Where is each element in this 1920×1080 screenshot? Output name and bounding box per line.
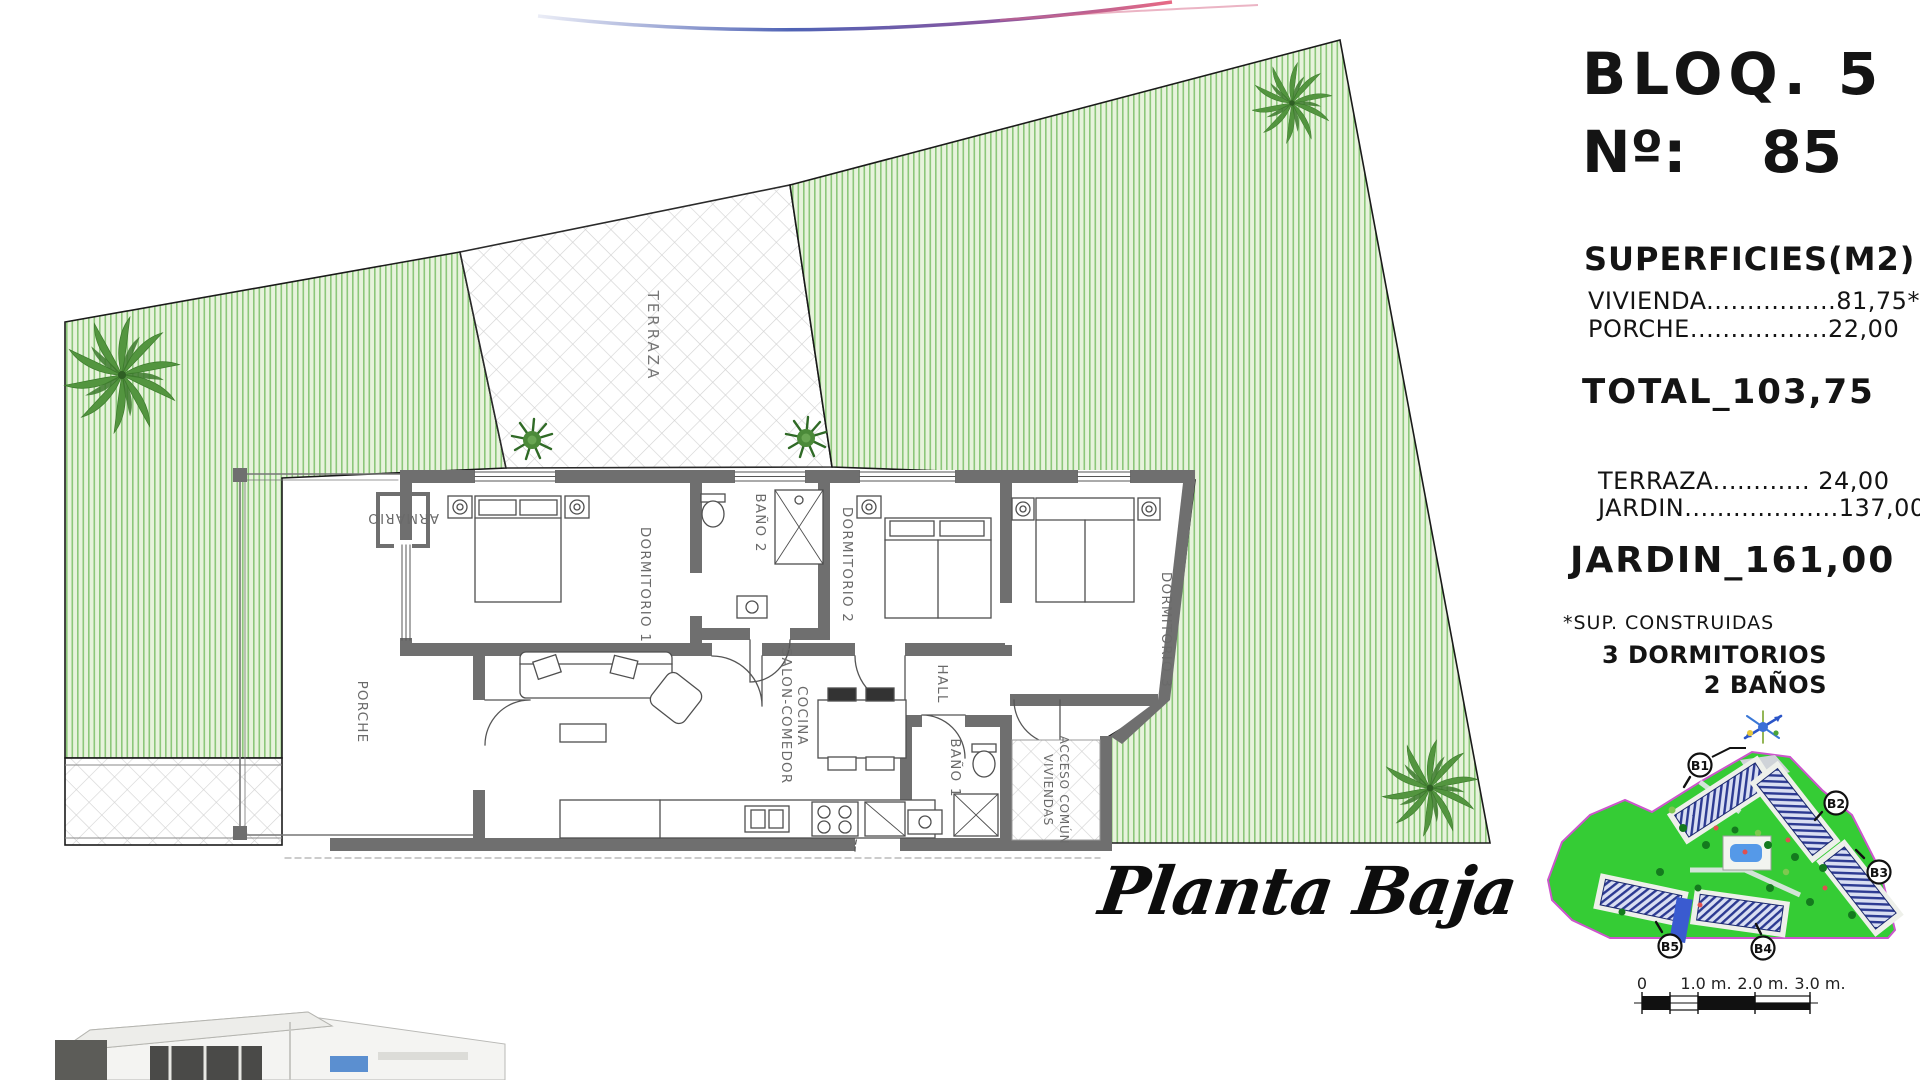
- porch-column: [233, 468, 247, 482]
- area-value: 137,00: [1839, 494, 1920, 522]
- bed-dormitorio2: [857, 496, 991, 618]
- dot-leader: .................: [1690, 315, 1828, 343]
- area-value: 24,00: [1818, 467, 1889, 495]
- plot-area: TERRAZA: [65, 40, 1491, 845]
- room-label-dormitorio2: DORMITORIO 2: [839, 507, 855, 623]
- garden-left: [65, 252, 506, 758]
- dot-leader: ................: [1706, 287, 1836, 315]
- room-label-acceso-line2: VIVIENDAS: [1041, 754, 1055, 826]
- unit-number-value: 85: [1761, 118, 1842, 186]
- area-label: JARDIN: [1598, 494, 1684, 522]
- area-row-jardin: JARDIN...................137,00: [1598, 495, 1920, 522]
- room-label-acceso-line1: ACCESO COMÚN: [1057, 736, 1072, 845]
- room-label-dormitorio1: DORMITORIO 1: [637, 527, 653, 643]
- building-render-thumbnail: [55, 1012, 505, 1080]
- room-label-dormitorio3: DORMITORIO 3: [1158, 572, 1174, 688]
- bathrooms-count: 2 BAÑOS: [1555, 670, 1827, 700]
- total-separator: _: [1713, 372, 1732, 412]
- outdoor-area-rows: TERRAZA............ 24,00 JARDIN........…: [1598, 468, 1920, 522]
- scale-bar: 0 1.0 m. 2.0 m. 3.0 m.: [1634, 974, 1846, 1014]
- north-compass-icon: [1745, 711, 1781, 743]
- room-label-salon-line2: COCINA: [794, 686, 810, 746]
- dot-leader: ...................: [1684, 494, 1838, 522]
- unit-number-label: Nº:: [1582, 118, 1686, 186]
- site-flag-line: [1712, 748, 1746, 757]
- block-title: BLOQ. 5: [1582, 40, 1884, 108]
- room-label-salon-line1: SALON-COMEDOR: [778, 648, 794, 785]
- scale-tick-0: 0: [1637, 974, 1647, 993]
- scale-bar-segments: [1634, 992, 1818, 1014]
- area-label: VIVIENDA: [1588, 287, 1706, 315]
- site-label-b1: B1: [1691, 758, 1709, 773]
- bed-dormitorio1: [448, 496, 589, 602]
- garden-total-value: 161,00: [1744, 540, 1895, 581]
- scale-tick-1: 1.0 m.: [1680, 974, 1731, 993]
- site-label-b2: B2: [1827, 796, 1845, 811]
- header-swoosh-decoration: [538, 2, 1258, 30]
- area-label: TERRAZA: [1598, 467, 1713, 495]
- gravel-strip: [65, 758, 282, 845]
- built-area-rows: VIVIENDA................81,75* PORCHE...…: [1588, 287, 1920, 343]
- area-value: 22,00: [1828, 315, 1899, 343]
- unit-number-row: Nº: 85: [1582, 118, 1842, 186]
- area-label: PORCHE: [1588, 315, 1690, 343]
- floorplan-page: TERRAZA: [0, 0, 1920, 1080]
- living-room-furniture: [520, 652, 906, 770]
- built-area-footnote: *SUP. CONSTRUIDAS: [1563, 612, 1774, 634]
- area-value: 81,75*: [1836, 287, 1920, 315]
- area-row-terraza: TERRAZA............ 24,00: [1598, 468, 1920, 495]
- bedrooms-count: 3 DORMITORIOS: [1555, 640, 1827, 670]
- garden-total-row: JARDIN _ 161,00: [1570, 540, 1824, 581]
- house-plan: PORCHE ARMARIO DORMITORIO 1 BAÑO 2 DORMI…: [233, 468, 1195, 858]
- site-label-b3: B3: [1870, 865, 1888, 880]
- terrace-label: TERRAZA: [644, 290, 662, 382]
- floor-caption: Planta Baja: [1095, 852, 1522, 930]
- scale-tick-3: 3.0 m.: [1794, 974, 1845, 993]
- room-label-bano2: BAÑO 2: [752, 493, 769, 552]
- room-label-porche: PORCHE: [354, 681, 370, 744]
- site-label-b4: B4: [1754, 941, 1773, 956]
- site-label-b5: B5: [1661, 939, 1679, 954]
- areas-title: SUPERFICIES(M2): [1584, 240, 1915, 278]
- area-row-vivienda: VIVIENDA................81,75*: [1588, 287, 1920, 315]
- garden-total-label: JARDIN: [1570, 540, 1724, 581]
- scale-tick-2: 2.0 m.: [1737, 974, 1788, 993]
- garden-total-separator: _: [1724, 540, 1744, 581]
- total-label: TOTAL: [1582, 372, 1713, 412]
- dot-leader: ............: [1713, 467, 1811, 495]
- total-row: TOTAL _ 103,75: [1582, 372, 1824, 412]
- room-label-armario: ARMARIO: [367, 510, 439, 526]
- porch-column: [233, 826, 247, 840]
- area-row-porche: PORCHE.................22,00: [1588, 315, 1920, 343]
- bed-dormitorio3: [1012, 498, 1160, 602]
- site-mini-map: B1 B2 B3 B4 B5: [1548, 748, 1904, 960]
- common-access-area: [1012, 740, 1100, 840]
- unit-features: 3 DORMITORIOS 2 BAÑOS: [1555, 640, 1827, 700]
- total-value: 103,75: [1732, 372, 1875, 412]
- room-label-bano1: BAÑO 1: [947, 738, 964, 797]
- room-label-hall: HALL: [934, 664, 950, 703]
